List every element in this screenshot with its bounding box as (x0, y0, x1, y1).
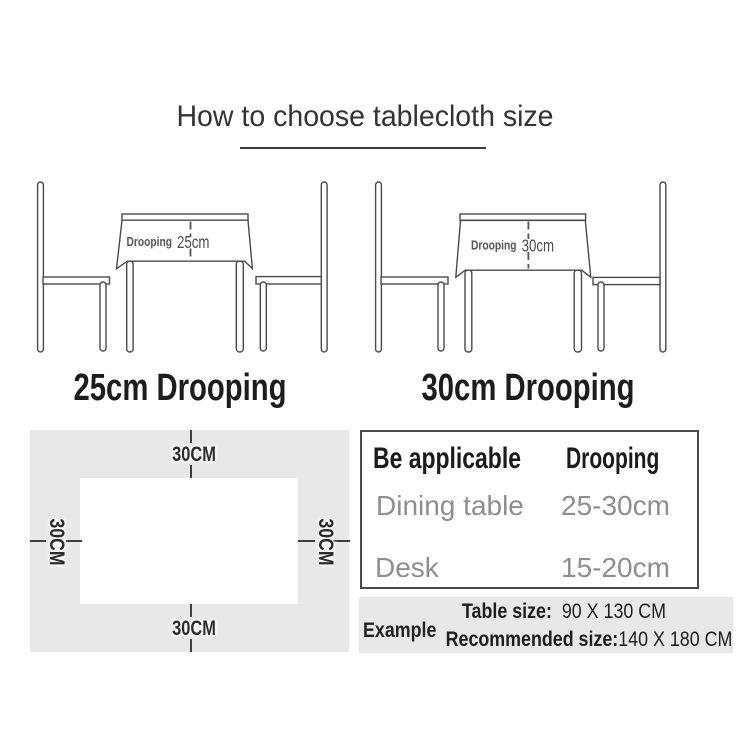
svg-text:25cm: 25cm (177, 232, 210, 252)
svg-text:Drooping: Drooping (127, 234, 173, 249)
svg-text:30cm: 30cm (522, 236, 555, 256)
svg-text:Drooping: Drooping (471, 238, 517, 253)
